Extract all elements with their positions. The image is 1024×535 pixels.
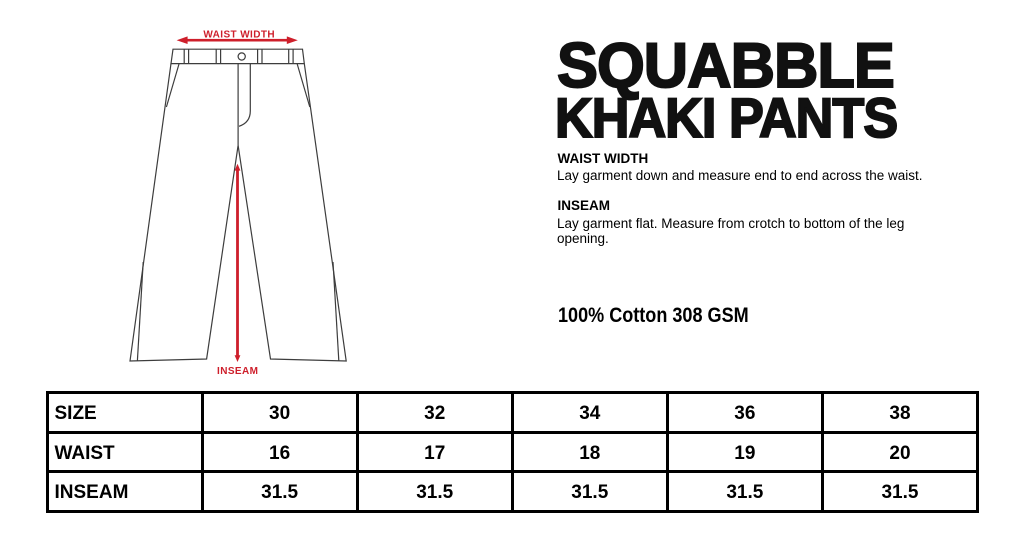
svg-text:INSEAM: INSEAM [217,366,258,377]
svg-text:WAIST WIDTH: WAIST WIDTH [203,29,275,40]
